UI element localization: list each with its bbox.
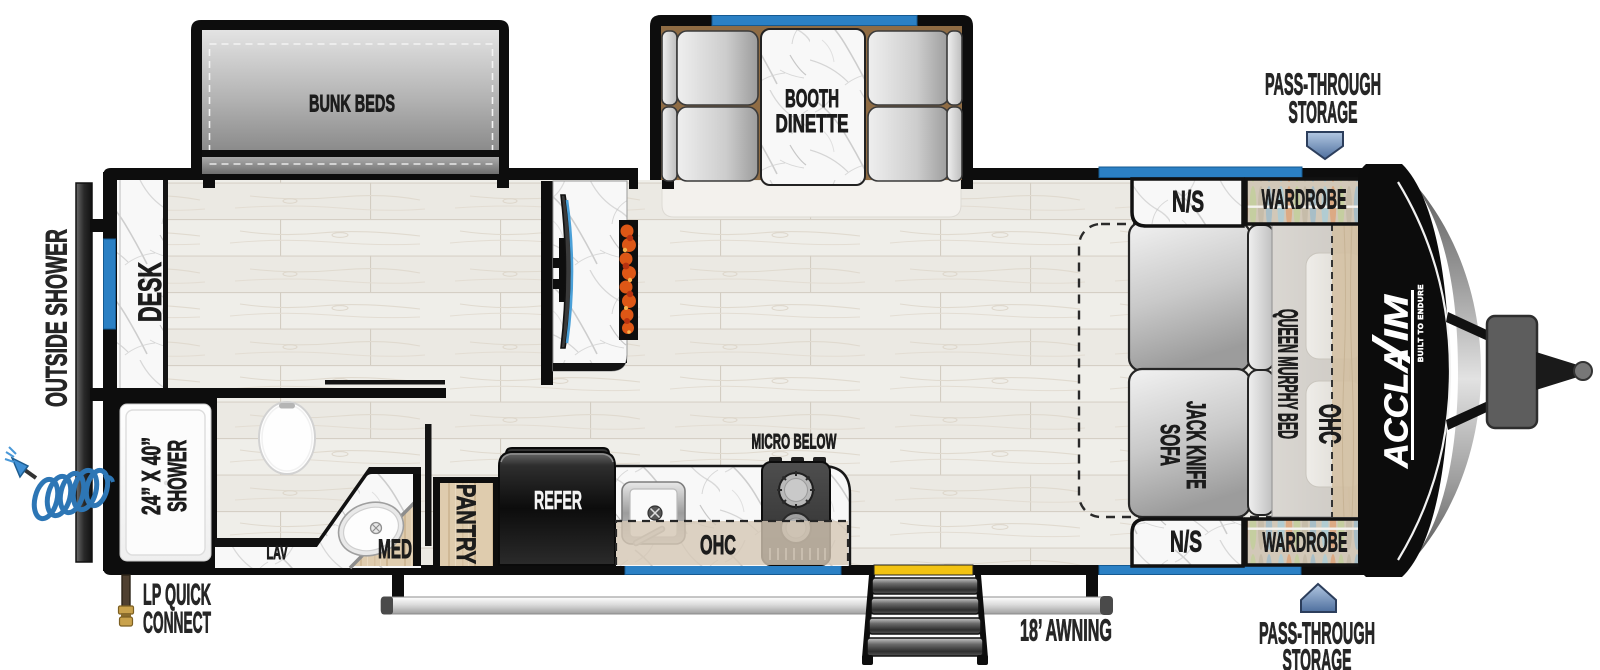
svg-text:CONNECT: CONNECT bbox=[143, 607, 211, 640]
svg-text:STORAGE: STORAGE bbox=[1289, 95, 1358, 130]
svg-text:ACCLA: ACCLA bbox=[1378, 348, 1415, 469]
svg-text:LAV: LAV bbox=[267, 543, 288, 563]
svg-text:N/S: N/S bbox=[1170, 526, 1202, 559]
svg-text:REFER: REFER bbox=[534, 485, 582, 515]
svg-text:DINETTE: DINETTE bbox=[776, 110, 849, 138]
svg-text:PANTRY: PANTRY bbox=[451, 484, 481, 564]
svg-text:OHC: OHC bbox=[700, 530, 736, 560]
svg-text:WARDROBE: WARDROBE bbox=[1263, 527, 1348, 558]
svg-text:OUTSIDE SHOWER: OUTSIDE SHOWER bbox=[41, 229, 74, 407]
svg-text:MICRO BELOW: MICRO BELOW bbox=[752, 431, 837, 454]
svg-text:BUILT TO ENDURE: BUILT TO ENDURE bbox=[1416, 284, 1425, 362]
svg-text:STORAGE: STORAGE bbox=[1283, 643, 1352, 670]
svg-text:DESK: DESK bbox=[132, 262, 168, 322]
svg-text:BUNK BEDS: BUNK BEDS bbox=[309, 91, 395, 118]
svg-text:WARDROBE: WARDROBE bbox=[1262, 184, 1347, 215]
svg-text:OHC: OHC bbox=[1313, 404, 1348, 444]
svg-text:N/S: N/S bbox=[1172, 186, 1204, 219]
svg-text:QUEEN MURPHY BED: QUEEN MURPHY BED bbox=[1273, 309, 1304, 439]
svg-text:SOFA: SOFA bbox=[1155, 424, 1185, 466]
svg-text:18’ AWNING: 18’ AWNING bbox=[1020, 613, 1112, 648]
svg-text:MED: MED bbox=[378, 534, 412, 564]
svg-text:BOOTH: BOOTH bbox=[785, 85, 839, 113]
svg-text:SHOWER: SHOWER bbox=[162, 440, 192, 512]
svg-text:IM: IM bbox=[1378, 293, 1415, 341]
